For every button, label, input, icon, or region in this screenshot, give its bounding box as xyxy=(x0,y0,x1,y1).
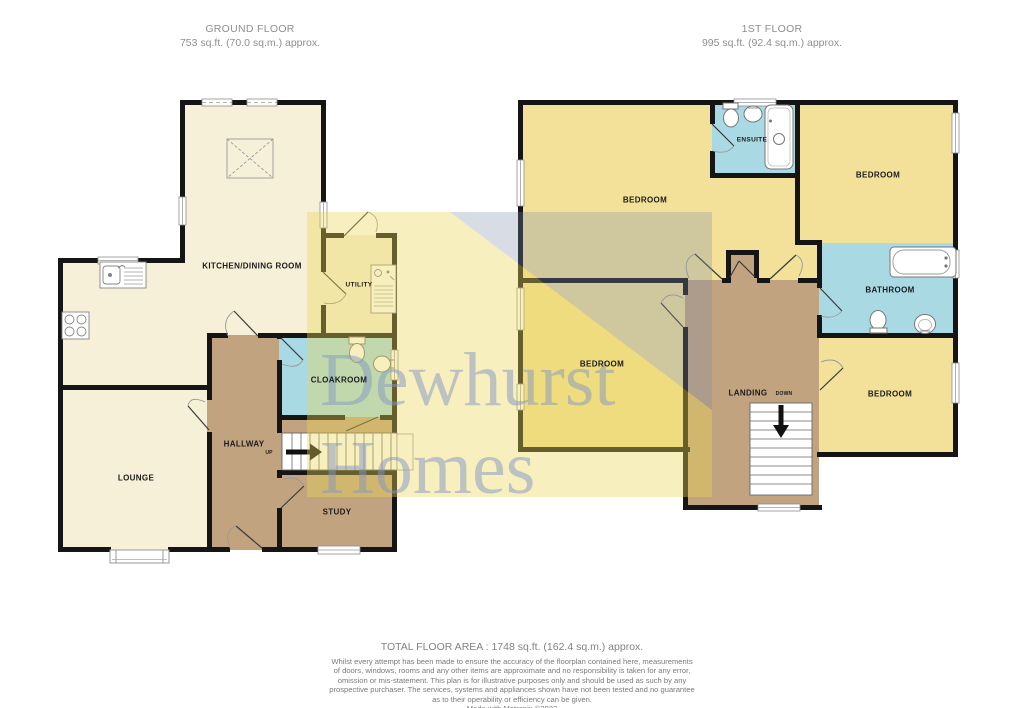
skylight-icon xyxy=(227,139,273,178)
bathroom-toilet-icon xyxy=(870,311,887,334)
ensuite-shower-icon xyxy=(765,105,793,169)
label-bedroom-top-left: BEDROOM xyxy=(623,196,667,205)
label-cloakroom: CLOAKROOM xyxy=(311,376,367,385)
first-floor-walls xyxy=(518,100,958,510)
label-kitchen: KITCHEN/DINING ROOM xyxy=(202,262,302,271)
kitchen-sink-icon xyxy=(100,262,146,288)
watermark-text-line2: Homes xyxy=(320,430,535,506)
label-bedroom-top-right: BEDROOM xyxy=(856,171,900,180)
bay-window xyxy=(110,550,169,563)
label-stairs-down: DOWN xyxy=(776,391,793,397)
disclaimer-line-3: omission or mis-statement. This plan is … xyxy=(0,676,1024,685)
label-bedroom-mid-left: BEDROOM xyxy=(580,360,624,369)
label-landing: LANDING xyxy=(729,389,768,398)
label-stairs-up: UP xyxy=(265,450,272,456)
disclaimer-line-2: of doors, windows, rooms and any other i… xyxy=(0,666,1024,675)
footer: TOTAL FLOOR AREA : 1748 sq.ft. (162.4 sq… xyxy=(0,641,1024,708)
bath-tub-icon xyxy=(890,247,956,277)
disclaimer-line-1: Whilst every attempt has been made to en… xyxy=(0,657,1024,666)
label-bedroom-bottom-right: BEDROOM xyxy=(868,390,912,399)
bathroom-basin-icon xyxy=(915,315,936,334)
credit-line: Made with Metropix ©2023 xyxy=(0,704,1024,708)
disclaimer-line-4: prospective purchaser. The services, sys… xyxy=(0,685,1024,694)
disclaimer-line-5: as to their operability or efficiency ca… xyxy=(0,695,1024,704)
ensuite-toilet-icon xyxy=(723,103,739,127)
total-floor-area: TOTAL FLOOR AREA : 1748 sq.ft. (162.4 sq… xyxy=(0,641,1024,653)
label-bathroom: BATHROOM xyxy=(865,286,914,295)
floorplan-page: GROUND FLOOR 753 sq.ft. (70.0 sq.m.) app… xyxy=(0,0,1024,708)
stairs-down xyxy=(750,403,812,495)
label-utility: UTILITY xyxy=(345,282,372,289)
ensuite-basin-icon xyxy=(744,106,762,122)
washing-machine-icon xyxy=(371,265,396,313)
label-lounge: LOUNGE xyxy=(118,474,154,483)
label-hallway: HALLWAY xyxy=(224,440,265,449)
label-ensuite: ENSUITE xyxy=(737,137,768,144)
label-study: STUDY xyxy=(323,508,352,517)
hob-icon xyxy=(62,312,89,339)
